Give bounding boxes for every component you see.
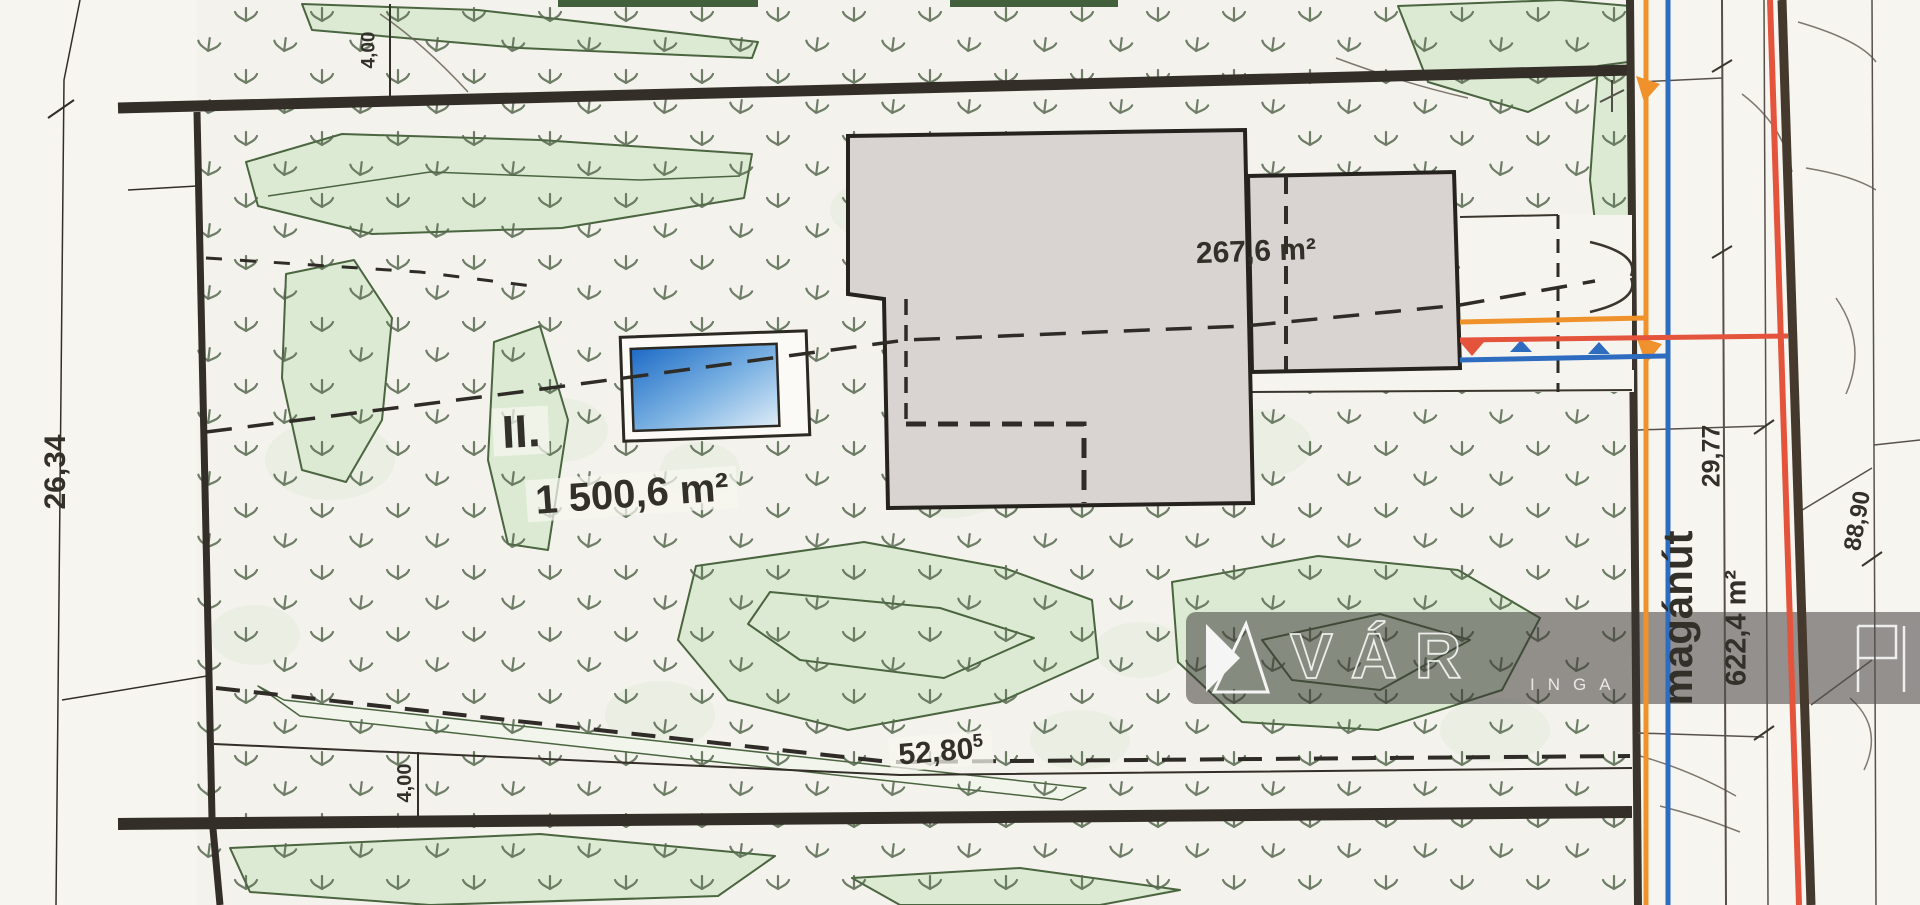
label-building-area: 267,6 m² [1195, 235, 1316, 269]
main-building [848, 130, 1253, 508]
site-plan-scan: VÁR INGA [0, 0, 1920, 905]
watermark-small-text: INGA [1530, 675, 1624, 694]
annex-building [1248, 172, 1460, 372]
label-dim-left: 26,34 [41, 434, 71, 509]
label-dim-top-strip: 4,00 [360, 32, 379, 69]
label-parcel-number: II. [492, 406, 551, 457]
watermark: VÁR INGA [1186, 612, 1920, 704]
label-road-area: 622,4 m² [1723, 570, 1752, 686]
swimming-pool [620, 331, 810, 441]
label-dim-road-width: 29,77 [1700, 425, 1725, 488]
label-road-name: magánút [1657, 530, 1699, 705]
label-dim-bottom-strip: 4,00 [395, 764, 415, 803]
watermark-brand-text: VÁR [1290, 620, 1479, 692]
site-plan-drawing: VÁR INGA [0, 0, 1920, 905]
